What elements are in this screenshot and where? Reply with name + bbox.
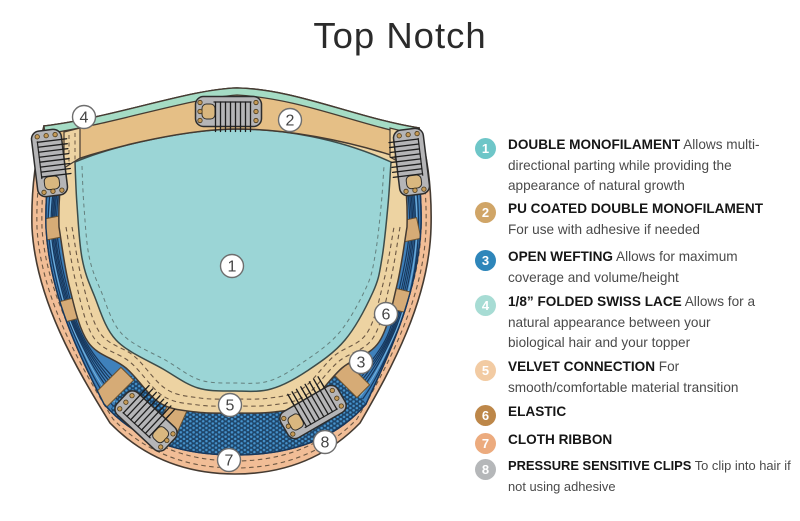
svg-text:7: 7: [225, 453, 234, 470]
svg-text:4: 4: [80, 110, 89, 127]
svg-text:5: 5: [226, 398, 235, 415]
svg-text:3: 3: [357, 355, 366, 372]
svg-text:8: 8: [321, 435, 330, 452]
svg-text:6: 6: [382, 307, 391, 324]
svg-text:2: 2: [286, 113, 295, 130]
svg-text:1: 1: [228, 259, 237, 276]
